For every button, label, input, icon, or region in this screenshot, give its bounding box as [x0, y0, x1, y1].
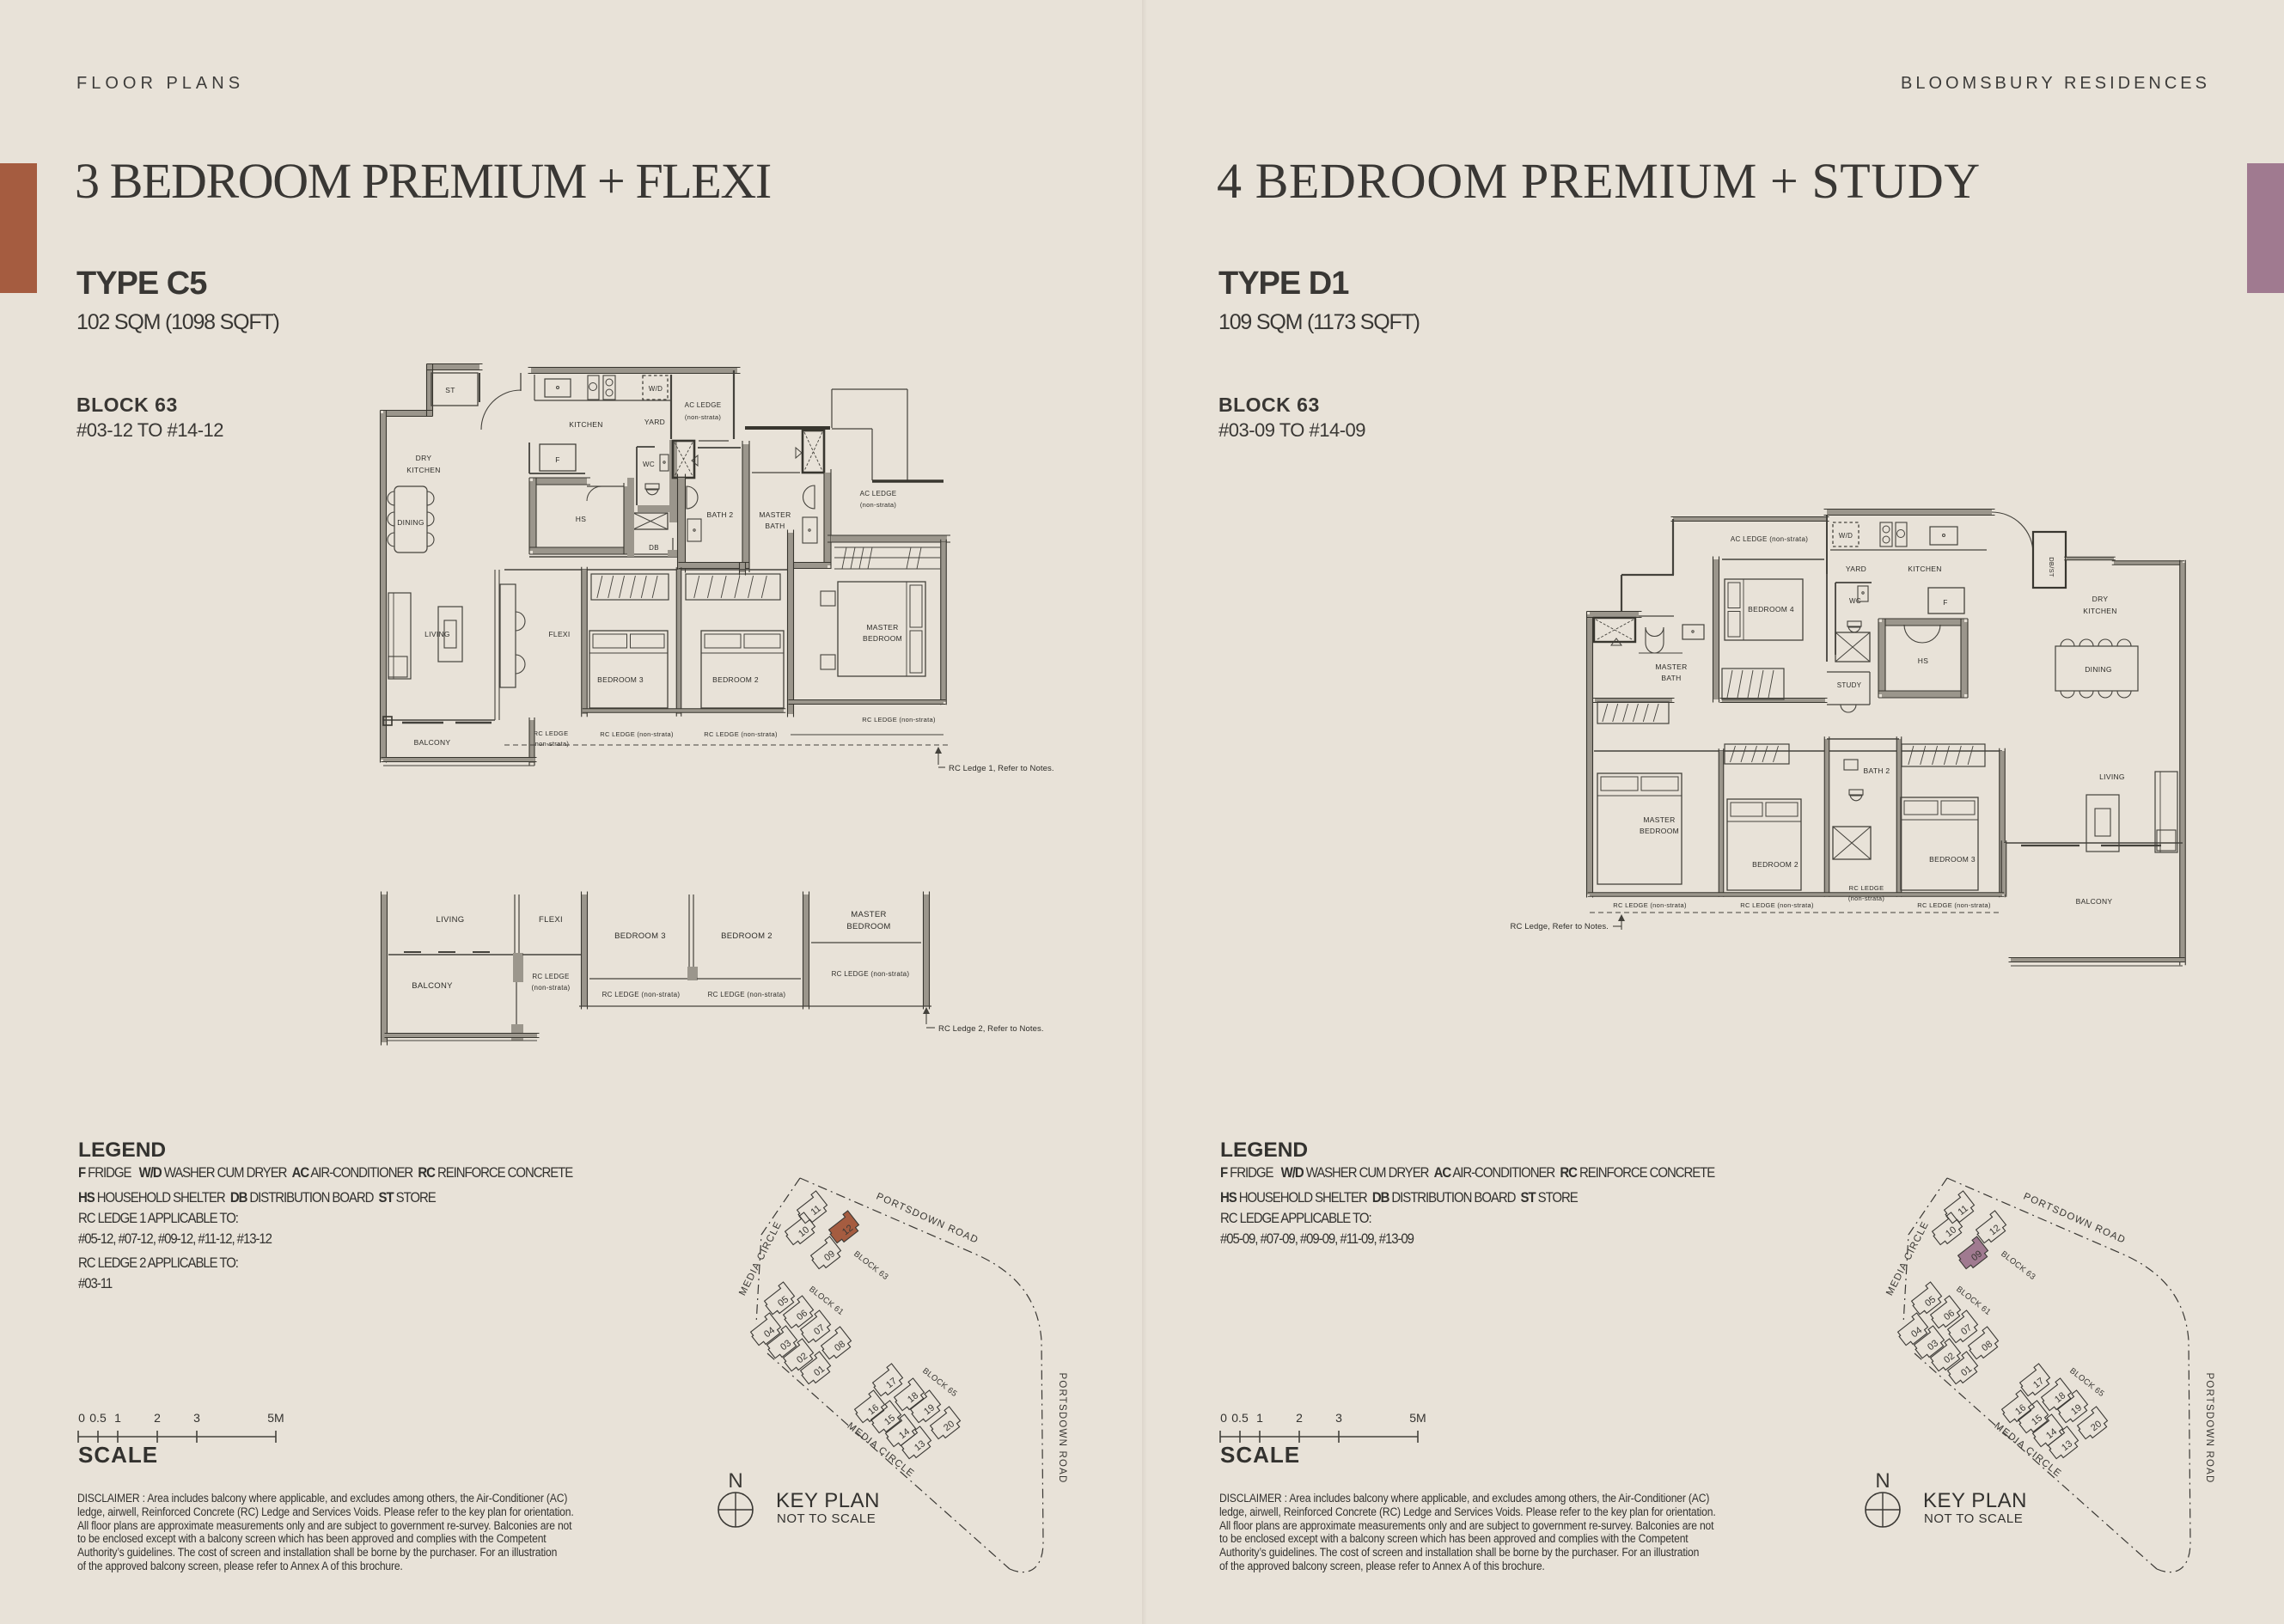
svg-text:1: 1 [1256, 1411, 1263, 1425]
svg-text:5M: 5M [1409, 1411, 1426, 1425]
svg-text:PORTSDOWN ROAD: PORTSDOWN ROAD [2204, 1372, 2214, 1483]
svg-text:BATH 2: BATH 2 [707, 510, 734, 519]
svg-text:DRY: DRY [416, 454, 432, 462]
svg-text:3: 3 [193, 1411, 200, 1425]
svg-text:BEDROOM 2: BEDROOM 2 [712, 675, 759, 684]
svg-text:STUDY: STUDY [1837, 681, 1862, 689]
svg-text:MASTER: MASTER [866, 623, 898, 632]
svg-text:W/D: W/D [1839, 532, 1853, 540]
svg-text:AC LEDGE: AC LEDGE [860, 490, 897, 498]
svg-text:BLOCK 65: BLOCK 65 [2067, 1366, 2105, 1399]
svg-text:MASTER: MASTER [1655, 662, 1687, 671]
svg-text:PORTSDOWN ROAD: PORTSDOWN ROAD [1057, 1372, 1067, 1483]
svg-text:MEDIA CIRCLE: MEDIA CIRCLE [1884, 1219, 1931, 1297]
svg-text:PORTSDOWN ROAD: PORTSDOWN ROAD [875, 1192, 980, 1246]
svg-text:2: 2 [1296, 1411, 1303, 1425]
svg-text:BEDROOM 2: BEDROOM 2 [1752, 860, 1798, 869]
svg-text:BALCONY: BALCONY [2076, 897, 2113, 906]
svg-text:LIVING: LIVING [424, 630, 450, 638]
svg-text:RC LEDGE (non-strata): RC LEDGE (non-strata) [1740, 901, 1814, 909]
svg-text:MASTER: MASTER [759, 510, 791, 519]
svg-text:BLOCK 61: BLOCK 61 [1954, 1285, 1992, 1317]
svg-text:W/D: W/D [649, 385, 663, 393]
svg-text:RC Ledge 1, Refer to Notes.: RC Ledge 1, Refer to Notes. [949, 764, 1054, 773]
svg-text:(non-strata): (non-strata) [533, 740, 570, 748]
svg-text:F: F [1943, 598, 1948, 607]
svg-text:PORTSDOWN ROAD: PORTSDOWN ROAD [2022, 1192, 2128, 1246]
svg-text:DB/ST: DB/ST [2048, 557, 2055, 577]
svg-text:AC LEDGE (non-strata): AC LEDGE (non-strata) [1731, 535, 1808, 543]
svg-text:LIVING: LIVING [437, 915, 465, 925]
svg-text:KEY PLAN: KEY PLAN [776, 1489, 880, 1512]
svg-text:DB: DB [649, 544, 659, 552]
svg-text:MEDIA CIRCLE: MEDIA CIRCLE [737, 1219, 784, 1297]
svg-text:BATH: BATH [1661, 674, 1681, 682]
svg-text:KITCHEN: KITCHEN [2083, 607, 2116, 615]
svg-text:BEDROOM: BEDROOM [1640, 827, 1679, 835]
svg-text:MASTER: MASTER [851, 910, 886, 919]
svg-text:(non-strata): (non-strata) [860, 501, 897, 509]
svg-text:F: F [555, 455, 560, 464]
svg-text:KITCHEN: KITCHEN [1908, 565, 1941, 573]
svg-text:BEDROOM 2: BEDROOM 2 [721, 931, 773, 941]
svg-text:BATH 2: BATH 2 [1864, 766, 1890, 775]
svg-text:ST: ST [445, 386, 455, 394]
svg-text:RC LEDGE (non-strata): RC LEDGE (non-strata) [600, 730, 674, 738]
svg-text:FLEXI: FLEXI [539, 915, 563, 925]
svg-text:BEDROOM: BEDROOM [863, 634, 902, 643]
svg-text:RC LEDGE: RC LEDGE [532, 973, 569, 980]
svg-text:BEDROOM: BEDROOM [846, 922, 890, 931]
svg-text:YARD: YARD [1846, 565, 1866, 573]
svg-text:BEDROOM 3: BEDROOM 3 [614, 931, 666, 941]
svg-text:RC LEDGE (non-strata): RC LEDGE (non-strata) [602, 991, 681, 998]
svg-text:BLOCK 63: BLOCK 63 [852, 1249, 889, 1282]
svg-text:RC LEDGE (non-strata): RC LEDGE (non-strata) [1917, 901, 1991, 909]
svg-text:0.5: 0.5 [1231, 1411, 1249, 1425]
svg-text:BLOCK 61: BLOCK 61 [807, 1285, 845, 1317]
svg-text:RC LEDGE: RC LEDGE [534, 730, 569, 737]
svg-text:RC LEDGE (non-strata): RC LEDGE (non-strata) [704, 730, 778, 738]
svg-text:RC Ledge, Refer to Notes.: RC Ledge, Refer to Notes. [1511, 922, 1609, 931]
svg-text:BATH: BATH [765, 522, 785, 530]
svg-text:0: 0 [78, 1411, 85, 1425]
svg-text:0.5: 0.5 [89, 1411, 107, 1425]
svg-text:BLOCK 65: BLOCK 65 [920, 1366, 958, 1399]
svg-text:0: 0 [1220, 1411, 1227, 1425]
svg-text:KEY PLAN: KEY PLAN [1923, 1489, 2027, 1512]
svg-text:MASTER: MASTER [1643, 815, 1675, 824]
svg-text:N: N [1875, 1469, 1890, 1493]
svg-text:FLEXI: FLEXI [548, 630, 570, 638]
svg-text:DINING: DINING [397, 518, 424, 527]
svg-text:LIVING: LIVING [2099, 772, 2125, 781]
svg-text:(non-strata): (non-strata) [532, 984, 571, 992]
svg-text:BEDROOM 3: BEDROOM 3 [1929, 855, 1976, 864]
svg-text:BALCONY: BALCONY [412, 981, 453, 991]
svg-text:YARD: YARD [644, 418, 665, 426]
svg-text:2: 2 [154, 1411, 161, 1425]
svg-text:1: 1 [114, 1411, 121, 1425]
svg-text:KITCHEN: KITCHEN [406, 466, 440, 474]
svg-text:(non-strata): (non-strata) [685, 413, 722, 421]
svg-text:DINING: DINING [2085, 665, 2112, 674]
svg-text:5M: 5M [267, 1411, 284, 1425]
svg-text:AC LEDGE: AC LEDGE [685, 401, 722, 409]
svg-text:HS: HS [576, 515, 586, 523]
svg-text:3: 3 [1335, 1411, 1342, 1425]
svg-text:RC LEDGE (non-strata): RC LEDGE (non-strata) [832, 970, 910, 978]
svg-text:BEDROOM 3: BEDROOM 3 [597, 675, 644, 684]
svg-text:RC LEDGE (non-strata): RC LEDGE (non-strata) [862, 716, 936, 723]
svg-text:NOT TO SCALE: NOT TO SCALE [1924, 1511, 2023, 1526]
svg-text:RC LEDGE (non-strata): RC LEDGE (non-strata) [708, 991, 786, 998]
svg-text:NOT TO SCALE: NOT TO SCALE [777, 1511, 876, 1526]
svg-text:(non-strata): (non-strata) [1848, 894, 1885, 902]
svg-text:N: N [728, 1469, 742, 1493]
svg-text:HS: HS [1918, 656, 1928, 665]
svg-text:DRY: DRY [2092, 595, 2109, 603]
svg-text:WC: WC [643, 461, 655, 468]
svg-text:RC LEDGE: RC LEDGE [1849, 884, 1884, 892]
svg-text:BEDROOM 4: BEDROOM 4 [1748, 605, 1794, 614]
svg-text:KITCHEN: KITCHEN [569, 420, 602, 429]
svg-text:RC Ledge 2, Refer to Notes.: RC Ledge 2, Refer to Notes. [938, 1024, 1044, 1034]
svg-text:BALCONY: BALCONY [414, 738, 451, 747]
svg-text:BLOCK 63: BLOCK 63 [1999, 1249, 2037, 1282]
svg-text:RC LEDGE (non-strata): RC LEDGE (non-strata) [1613, 901, 1687, 909]
